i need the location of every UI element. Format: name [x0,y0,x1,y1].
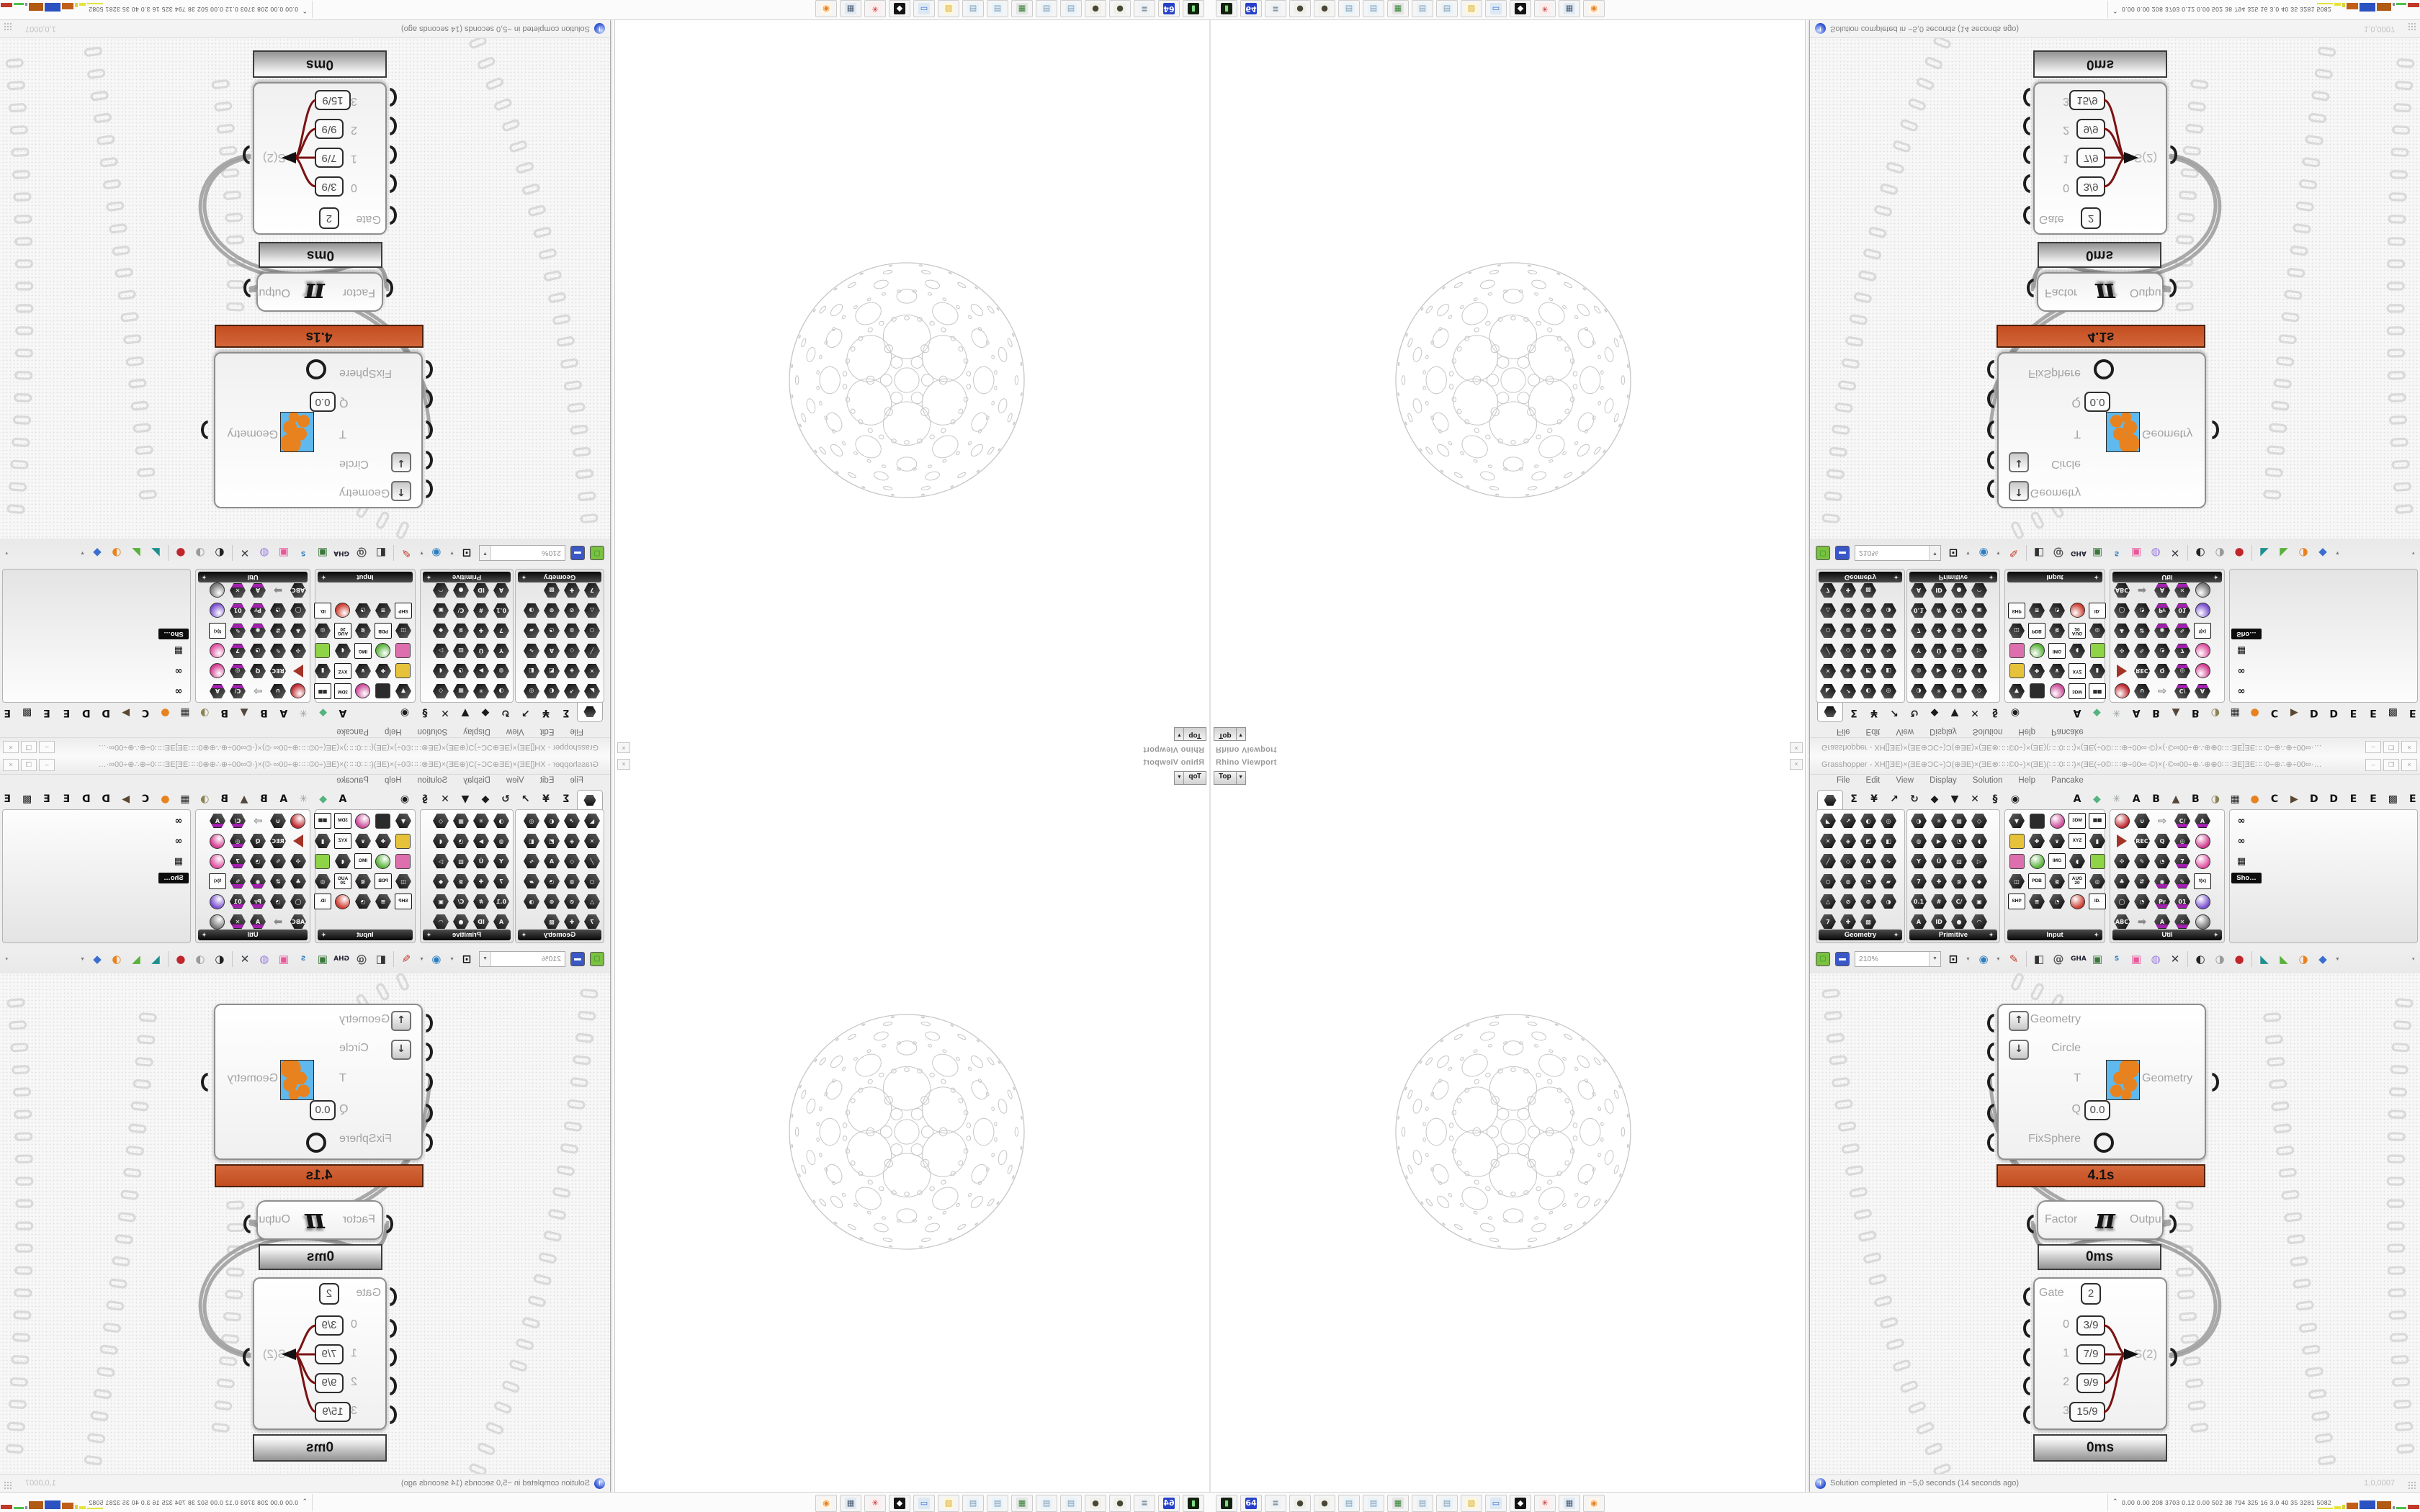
component-icon[interactable]: ▩ [1860,582,1877,599]
tab-icon-0[interactable]: Σ [557,704,575,721]
pc-monitor-app-button[interactable]: ▦ [1387,0,1409,17]
preview-half-icon[interactable]: ◑ [2296,546,2311,560]
floppy64-app-button[interactable]: 64 [1240,1495,1262,1512]
component-icon[interactable]: ◖ [432,662,449,680]
plugin-tab-17[interactable]: E [2403,791,2420,808]
gh-canvas[interactable]: GeometryCircleTQFixSphere↑↓Geometry0.04.… [0,38,610,539]
selection-hex-icon[interactable]: ◆ [2316,546,2330,560]
maximize-button[interactable]: ❐ [2383,741,2399,753]
plugin-tab-9[interactable]: ● [2246,704,2264,721]
component-icon[interactable]: ID [472,913,490,930]
component-icon[interactable]: ♣ [2113,873,2130,890]
display-app-button[interactable]: ▭ [913,0,935,17]
component-icon[interactable]: 0.1 [493,893,510,910]
tab-icon-2[interactable]: ↗ [1885,791,1904,808]
component-icon[interactable]: ◔ [2154,642,2171,660]
component-icon[interactable]: ✚ [1839,582,1857,599]
component-icon[interactable]: ◑ [1880,893,1897,910]
component-icon[interactable] [2194,913,2211,930]
component-icon[interactable]: ✣ [290,852,307,870]
component-icon[interactable]: ▣ [432,893,449,910]
component-icon[interactable]: ➡ [269,913,287,930]
component-icon[interactable]: C/ [2174,812,2191,829]
cluster-dark-icon[interactable]: ◐ [2193,952,2208,966]
sphere-app-button[interactable]: ● [1289,0,1311,17]
menu-item-pancake[interactable]: Pancake [2043,774,2092,788]
folder-app-button[interactable]: ▨ [938,0,959,17]
plugin-tab-13[interactable]: D [2324,704,2343,721]
fixsphere-toggle[interactable] [2094,1133,2114,1153]
component-icon[interactable]: ∞ [2233,832,2250,850]
component-icon[interactable]: Y [493,852,510,870]
chevron-down-icon[interactable]: ▼ [1996,551,2002,556]
component-icon[interactable]: ○ [583,873,601,890]
component-icon[interactable] [2008,662,2025,680]
tab-icon-7[interactable]: § [1986,704,2004,721]
component-icon[interactable]: SHP [395,602,412,619]
component-icon[interactable]: ◎ [1880,812,1897,829]
component-icon[interactable] [209,893,226,910]
component-icon[interactable]: ◖ [2069,642,2086,660]
component-icon[interactable]: ✕ [583,662,601,680]
component-icon[interactable]: ID [472,582,490,599]
panel-icon[interactable]: ◧ [374,952,388,966]
plugin-tab-14[interactable]: E [2344,704,2363,721]
component-icon[interactable]: f(x) [2194,873,2211,890]
component-icon[interactable] [2113,683,2130,700]
component-icon[interactable]: ⇵ [269,873,287,890]
firefox-app-button[interactable]: ◉ [815,1495,837,1512]
preview-half-icon[interactable]: ◑ [109,546,124,560]
component-icon[interactable]: REC [269,832,287,850]
tab-params-selected[interactable] [577,790,603,810]
component-icon[interactable]: ◣ [583,683,601,700]
plugin-tab-4[interactable]: B [2147,791,2166,808]
tab-icon-2[interactable]: ↗ [516,791,535,808]
component-icon[interactable]: ID [1930,913,1948,930]
component-icon[interactable] [354,812,372,829]
sketch-icon[interactable]: ✎ [399,546,413,560]
component-icon[interactable]: ▼ [2008,812,2025,829]
component-icon[interactable]: ID. [314,893,331,910]
gear-app-button[interactable]: ✳ [864,0,886,17]
component-icon[interactable] [395,642,412,660]
notepad-app-button[interactable]: ▤ [1412,0,1433,17]
component-icon[interactable]: ◑ [523,602,540,619]
component-icon[interactable]: ◫ [2008,622,2025,639]
plugin-tab-12[interactable]: D [2305,791,2323,808]
grasshopper-titlebar[interactable]: Grasshopper - XH[]ƎE)×(ƎE⊕ƆC÷)Ɔ(⊕ƎE)×(ƎE… [0,737,610,756]
component-icon[interactable] [2113,832,2130,850]
tab-icon-6[interactable]: ✕ [436,704,454,721]
component-icon[interactable]: ◔ [2133,602,2151,619]
help-box-icon[interactable]: ▣ [277,546,291,560]
tab-params-selected[interactable] [1817,702,1843,722]
calculator-app-button[interactable]: ▦ [840,1495,861,1512]
component-icon[interactable]: ▰ [1880,873,1897,890]
component-icon[interactable]: IMG [2048,642,2066,660]
group-label-input[interactable]: Input✦ [318,930,413,940]
cluster-dark-icon[interactable]: ◐ [212,546,227,560]
component-icon[interactable]: 7 [229,642,246,660]
component-icon[interactable]: A [1910,582,1927,599]
down-button[interactable]: ↓ [391,1040,411,1060]
component-icon[interactable]: ▷ [1971,642,1988,660]
component-icon[interactable]: ╱ [583,852,601,870]
tab-icon-2[interactable]: ↗ [516,704,535,721]
component-icon[interactable]: ◑ [1880,602,1897,619]
component-icon[interactable]: ◈ [1839,662,1857,680]
component-icon[interactable]: ✚ [2028,832,2045,850]
group-label-show[interactable]: Sho… [158,629,189,639]
inkscape-app-button[interactable]: ◆ [889,1495,910,1512]
component-icon[interactable]: ◍ [1910,662,1927,680]
floppy64-app-button[interactable]: 64 [1158,0,1180,17]
component-icon[interactable] [2113,812,2130,829]
component-icon[interactable]: ◈ [563,662,581,680]
internalise-icon[interactable]: @ [354,952,369,966]
chevron-down-icon[interactable]: ▼ [1929,546,1940,560]
group-label-primitive[interactable]: Primitive✦ [423,930,511,940]
resize-grip[interactable] [2408,1481,2416,1490]
component-icon[interactable]: ● [1950,582,1968,599]
component-icon[interactable]: ≷ [2048,622,2066,639]
plugin-tab-17[interactable]: E [0,791,17,808]
component-icon[interactable] [290,683,307,700]
plugin-tab-6[interactable]: B [2186,791,2205,808]
component-icon[interactable]: ◈ [1839,832,1857,850]
component-icon[interactable] [209,602,226,619]
component-icon[interactable]: ◫ [2008,873,2025,890]
component-icon[interactable]: ◠ [432,913,449,930]
cluster-dark-icon[interactable]: ◐ [212,952,227,966]
component-icon[interactable]: ◆ [432,873,449,890]
chevron-down-icon[interactable]: ▼ [2335,957,2341,962]
component-icon[interactable]: ∨ [2048,662,2066,680]
grasshopper-titlebar[interactable]: Grasshopper - XH[]ƎE)×(ƎE⊕ƆC÷)Ɔ(⊕ƎE)×(ƎE… [1810,756,2420,775]
plugin-tab-5[interactable]: ▲ [2166,704,2185,721]
sphere-app-button[interactable]: ● [1314,1495,1335,1512]
component-icon[interactable]: ◖ [334,852,351,870]
component-icon[interactable]: ◯ [290,893,307,910]
component-icon[interactable]: 0.1 [493,602,510,619]
component-icon[interactable]: C/ [1950,602,1968,619]
component-icon[interactable]: # [1930,602,1948,619]
menu-item-file[interactable]: File [1829,774,1858,788]
component-icon[interactable]: ID. [2089,602,2106,619]
component-icon[interactable]: Ü [1930,852,1948,870]
component-icon[interactable]: ◎ [229,662,246,680]
component-icon[interactable]: ○ [1819,873,1837,890]
sphere-app-button[interactable]: ● [1109,1495,1131,1512]
component-icon[interactable]: ≡ [375,602,392,619]
component-icon[interactable]: ◯ [2113,602,2130,619]
component-icon[interactable] [2008,642,2025,660]
plugin-tab-8[interactable]: ▦ [2226,704,2244,721]
tab-icon-0[interactable]: Σ [1845,791,1863,808]
component-icon[interactable]: f(x) [209,873,226,890]
component-icon[interactable]: ◇ [563,852,581,870]
component-icon[interactable] [2194,893,2211,910]
component-icon[interactable]: 7 [493,873,510,890]
group-label-primitive[interactable]: Primitive✦ [423,572,511,582]
preview-eye-icon[interactable]: ◉ [429,546,444,560]
notepad-app-button[interactable]: ▤ [1036,1495,1057,1512]
component-icon[interactable] [314,642,331,660]
tab-icon-5[interactable]: ▼ [456,791,475,808]
component-icon[interactable]: ◎ [229,832,246,850]
plugin-tab-17[interactable]: E [2403,704,2420,721]
plugin-tab-12[interactable]: D [97,791,115,808]
plugin-tab-11[interactable]: ▶ [117,704,135,721]
component-icon[interactable]: ◑ [523,893,540,910]
component-icon[interactable]: ◠ [1971,913,1988,930]
notepad-app-button[interactable]: ▤ [987,1495,1008,1512]
console-app-button[interactable]: ▮ [1216,0,1237,17]
component-icon[interactable]: ⇨ [2154,683,2171,700]
component-icon[interactable]: REC [2133,832,2151,850]
menu-item-edit[interactable]: Edit [1858,774,1888,788]
component-icon[interactable]: ◯ [2113,893,2130,910]
gate-value-box[interactable]: 2 [2081,207,2101,229]
component-icon[interactable]: ✳ [472,683,490,700]
plugin-tab-7[interactable]: ◑ [195,791,214,808]
component-icon[interactable]: ≡ [375,893,392,910]
tab-icon-7[interactable]: § [416,791,434,808]
component-icon[interactable]: A [249,913,266,930]
component-icon[interactable]: ◠ [432,582,449,599]
component-icon[interactable]: Pr [249,602,266,619]
component-icon[interactable] [2048,683,2066,700]
gate-row-value-2[interactable]: 9/9 [315,119,344,139]
chevron-down-icon[interactable]: ▼ [1966,957,1971,962]
gate-row-value-1[interactable]: 7/9 [315,148,344,168]
gate-row-value-3[interactable]: 15/9 [2069,90,2105,110]
minimize-button[interactable]: – [2365,759,2381,771]
component-icon[interactable]: ✕ [1819,662,1837,680]
plugin-tab-7[interactable]: ◑ [195,704,214,721]
minimize-button[interactable]: – [39,741,55,753]
component-icon[interactable]: PDB [2028,622,2045,639]
zoom-extents-icon[interactable]: ⊡ [1946,546,1960,560]
component-icon[interactable]: Ü [472,852,490,870]
component-icon[interactable] [2048,812,2066,829]
tab-icon-8[interactable]: ◉ [2006,791,2025,808]
component-icon[interactable] [2069,893,2086,910]
component-icon[interactable]: Q [2154,832,2171,850]
component-icon[interactable]: ◎ [314,873,331,890]
component-icon[interactable]: ∪ [2133,812,2151,829]
component-icon[interactable]: ◆ [432,622,449,639]
tab-icon-4[interactable]: ◆ [476,704,495,721]
gate-row-value-1[interactable]: 7/9 [2076,148,2105,168]
plugin-tab-1[interactable]: ◆ [2087,791,2106,808]
monitor-chevron-icon[interactable]: ⌃ [2112,6,2118,14]
sphere-app-button[interactable]: ● [1109,0,1131,17]
cluster-red-icon[interactable]: ● [2232,546,2246,560]
component-icon[interactable]: ➡ [2133,913,2151,930]
plugin-tab-6[interactable]: B [2186,704,2205,721]
component-icon[interactable]: ◔ [249,642,266,660]
component-icon[interactable]: ➡ [2133,582,2151,599]
component-icon[interactable] [2028,812,2045,829]
component-icon[interactable]: ▨ [452,642,470,660]
component-icon[interactable] [2194,642,2211,660]
up-button[interactable]: ↑ [391,481,411,501]
gh-canvas[interactable]: GeometryCircleTQFixSphere↑↓Geometry0.04.… [0,973,610,1474]
folder-app-button[interactable]: ▨ [1461,1495,1482,1512]
panel-icon[interactable]: ◧ [2032,546,2046,560]
chevron-down-icon[interactable]: ▼ [449,957,454,962]
group-label-input[interactable]: Input✦ [2007,572,2102,582]
component-icon[interactable]: Pr [2154,602,2171,619]
component-icon[interactable]: PDB [375,873,392,890]
component-icon[interactable]: ID. [314,602,331,619]
component-icon[interactable]: ▩ [543,582,560,599]
component-icon[interactable]: ╱ [1819,642,1837,660]
wires-icon[interactable]: ✕ [238,546,252,560]
component-icon[interactable]: ≶ [1950,622,1968,639]
component-icon[interactable]: Pr [249,893,266,910]
component-icon[interactable]: ◍ [563,622,581,639]
plugin-tab-0[interactable]: A [2068,704,2087,721]
balloon-icon[interactable]: ◍ [2148,546,2163,560]
preview-eye-icon[interactable]: ◉ [1976,546,1991,560]
plugin-tab-14[interactable]: E [2344,791,2363,808]
component-icon[interactable]: ▮ [2089,662,2106,680]
component-icon[interactable]: ▰ [523,622,540,639]
component-icon[interactable]: AUG 20 [2069,622,2086,639]
component-icon[interactable]: ∞ [170,683,187,700]
component-icon[interactable]: ∿ [1880,642,1897,660]
menu-item-display[interactable]: Display [455,774,498,788]
gate-row-value-0[interactable]: 3/9 [315,1315,344,1336]
menu-item-help[interactable]: Help [377,774,410,788]
component-icon[interactable]: ID [1930,582,1948,599]
minimize-button[interactable]: – [2365,741,2381,753]
component-icon[interactable]: 7 [1910,622,1927,639]
balloon-icon[interactable]: ◍ [2148,952,2163,966]
component-icon[interactable]: ✳ [1930,683,1948,700]
up-button[interactable]: ↑ [391,1011,411,1031]
display-app-button[interactable]: ▭ [913,1495,935,1512]
plugin-tab-15[interactable]: E [37,704,56,721]
plugin-tab-13[interactable]: D [77,704,96,721]
component-icon[interactable]: ◔ [543,622,560,639]
component-icon[interactable]: ▷ [432,852,449,870]
component-icon[interactable]: ◑ [1910,812,1927,829]
component-icon[interactable]: ◑ [493,683,510,700]
component-icon[interactable]: ▮ [2089,832,2106,850]
component-icon[interactable]: ⊘ [563,893,581,910]
tab-icon-4[interactable]: ◆ [1925,704,1944,721]
calculator-app-button[interactable]: ▦ [840,0,861,17]
component-icon[interactable]: ◔ [354,893,372,910]
component-icon[interactable]: ▦▦ [314,812,331,829]
component-icon[interactable] [2194,832,2211,850]
component-icon[interactable]: ◫ [395,622,412,639]
grasshopper-titlebar[interactable]: Grasshopper - XH[]ƎE)×(ƎE⊕ƆC÷)Ɔ(⊕ƎE)×(ƎE… [1810,737,2420,756]
component-icon[interactable]: ◣ [1819,812,1837,829]
gha-icon[interactable]: GHA [335,952,349,966]
component-icon[interactable]: ◔ [1950,832,1968,850]
cluster-light-icon[interactable]: ◑ [193,952,207,966]
toolbar-overflow-caret[interactable]: ▾ [2,956,8,962]
menu-item-display[interactable]: Display [1922,774,1965,788]
plugin-tab-9[interactable]: ● [2246,791,2264,808]
component-icon[interactable]: ◐ [1860,812,1877,829]
open-file-icon[interactable]: ▢ [590,546,604,560]
component-icon[interactable]: ◔ [1950,662,1968,680]
component-icon[interactable]: ⇨ [2154,812,2171,829]
help-box-icon[interactable]: ▣ [2129,546,2143,560]
plugin-tab-15[interactable]: E [37,791,56,808]
component-icon[interactable]: ABC [290,582,307,599]
zoom-level-combo[interactable]: 210%▼ [479,951,565,967]
plugin-tab-0[interactable]: A [333,704,352,721]
console-app-button[interactable]: ▮ [1183,0,1204,17]
component-icon[interactable]: ∞ [170,832,187,850]
tab-icon-0[interactable]: Σ [557,791,575,808]
component-icon[interactable]: ↗ [563,812,581,829]
tab-icon-1[interactable]: ¥ [537,704,555,721]
component-icon[interactable]: ▦ [2233,642,2250,660]
tab-icon-5[interactable]: ▼ [1945,791,1964,808]
component-icon[interactable]: Q [249,832,266,850]
component-icon[interactable]: ⊚ [1860,893,1877,910]
gha-icon[interactable]: GHA [2071,546,2085,560]
component-icon[interactable]: ✣ [290,642,307,660]
plugin-tab-3[interactable]: A [274,791,293,808]
plugin-tab-6[interactable]: B [215,704,234,721]
gate-row-value-3[interactable]: 15/9 [315,1402,351,1422]
component-icon[interactable]: ◔ [269,602,287,619]
component-icon[interactable]: 7 [229,852,246,870]
pc-monitor-app-button[interactable]: ▦ [1387,1495,1409,1512]
component-icon[interactable]: ▨ [1950,852,1968,870]
menu-item-edit[interactable]: Edit [1858,724,1888,738]
component-icon[interactable]: ⇵ [2133,873,2151,890]
notepad-app-button[interactable]: ▤ [1412,1495,1433,1512]
component-icon[interactable]: REC [2133,662,2151,680]
component-icon[interactable]: ▶ [472,662,490,680]
component-icon[interactable]: AUG 20 [334,622,351,639]
component-icon[interactable]: ↗ [563,683,581,700]
component-icon[interactable]: Q [249,662,266,680]
plugin-tab-11[interactable]: ▶ [2285,791,2303,808]
component-icon[interactable]: ◣ [1819,683,1837,700]
component-icon[interactable] [2069,602,2086,619]
component-icon[interactable]: ≷ [354,873,372,890]
component-icon[interactable]: ◍ [1839,622,1857,639]
component-icon[interactable]: A [543,642,560,660]
component-icon[interactable]: ✕ [1819,832,1837,850]
component-icon[interactable]: ✣ [2113,852,2130,870]
component-icon[interactable]: ○ [583,622,601,639]
gate-row-value-2[interactable]: 9/9 [2076,1373,2105,1393]
window-icon[interactable]: ▣ [2090,952,2105,966]
component-icon[interactable] [2008,852,2025,870]
component-icon[interactable]: ∞ [170,662,187,680]
component-icon[interactable]: ♣ [290,622,307,639]
cluster-light-icon[interactable]: ◑ [2213,546,2227,560]
component-icon[interactable]: ◉ [2154,873,2171,890]
component-icon[interactable]: ◔ [269,893,287,910]
zoom-extents-icon[interactable]: ⊡ [460,952,474,966]
component-icon[interactable]: ◔ [2048,602,2066,619]
plugin-tab-15[interactable]: E [2364,704,2383,721]
plugin-tab-1[interactable]: ◆ [314,704,333,721]
